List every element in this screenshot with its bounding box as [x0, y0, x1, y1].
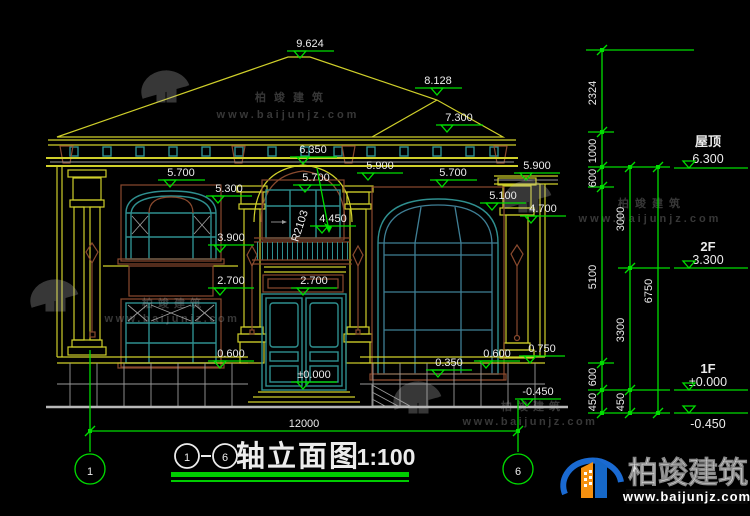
watermark-url: www.baijunjz.com — [216, 109, 360, 121]
floor-level-roof: 屋顶 6.300 — [674, 134, 748, 168]
svg-text:±0.000: ±0.000 — [689, 375, 727, 389]
watermark-brand: 柏竣建筑 — [618, 196, 686, 210]
balcony-railing — [252, 238, 352, 264]
overall-dim-text: 12000 — [289, 418, 320, 430]
swing-arrow — [282, 220, 287, 224]
svg-text:0.600: 0.600 — [483, 348, 511, 360]
watermark-bottom: 柏竣建筑 www.baijunjz.com — [396, 382, 598, 428]
drawing-title: 1 6 轴立面图 1:100 — [171, 439, 415, 482]
dim-a-1: 1000 — [587, 139, 599, 163]
axis-bubble-1: 1 — [75, 454, 105, 484]
brand-logo-name: 柏竣建筑 — [628, 456, 748, 490]
dimension-chains: 2324 1000 600 5100 600 450 3000 3300 450… — [586, 45, 694, 418]
level-marker-eave-right: 5.700 — [430, 167, 477, 187]
svg-text:5.700: 5.700 — [439, 167, 467, 179]
title-underline-thick — [171, 472, 409, 477]
brand-logo-url: www.baijunjz.com — [622, 489, 750, 504]
svg-text:8.128: 8.128 — [424, 75, 452, 87]
svg-text:2.700: 2.700 — [217, 275, 245, 287]
axis-bubble-6: 6 — [503, 454, 533, 484]
left-window-2f — [118, 185, 224, 264]
svg-text:-0.450: -0.450 — [690, 417, 725, 431]
dim-a-5: 450 — [587, 393, 599, 411]
svg-text:2.700: 2.700 — [300, 275, 328, 287]
level-marker-rail-top: 4.450 — [310, 213, 356, 233]
watermark-brand: 柏竣建筑 — [142, 296, 206, 310]
floor-level-1f: 1F ±0.000 — [674, 361, 748, 390]
wall-lamp — [511, 245, 523, 341]
title-underline-thin — [171, 480, 409, 482]
dim-c-0: 6750 — [643, 279, 655, 303]
level-marker-sill-2f-left: 3.900 — [208, 232, 254, 252]
level-marker-plinth-right: 0.750 — [519, 343, 565, 363]
floor-level-2f: 2F 3.300 — [674, 239, 748, 268]
svg-text:5.700: 5.700 — [302, 172, 330, 184]
level-marker-sill-1f-left: 0.600 — [208, 348, 254, 368]
svg-text:屋顶: 屋顶 — [695, 134, 721, 149]
level-marker-ridge2: 8.128 — [415, 75, 462, 95]
level-marker-cornice-center: 5.900 — [357, 160, 403, 180]
dim-b-1: 3300 — [615, 318, 627, 342]
title-axis-to: 6 — [222, 452, 228, 464]
spandrel-panel — [129, 266, 213, 296]
svg-text:-0.450: -0.450 — [522, 386, 553, 398]
dim-b-2: 450 — [615, 393, 627, 411]
floor-level-base: -0.450 — [674, 406, 748, 431]
svg-text:5.100: 5.100 — [489, 190, 517, 202]
svg-text:6: 6 — [515, 466, 521, 478]
dim-a-3: 5100 — [587, 265, 599, 289]
brand-logo-mark — [563, 458, 621, 498]
svg-text:5.700: 5.700 — [167, 167, 195, 179]
level-marker-cornice-right: 5.900 — [514, 160, 560, 180]
watermark-brand: 柏竣建筑 — [501, 399, 565, 413]
svg-text:3.300: 3.300 — [692, 253, 723, 267]
dentil-band — [70, 147, 498, 156]
svg-text:1F: 1F — [700, 361, 715, 376]
svg-text:5.900: 5.900 — [366, 160, 394, 172]
dim-a-2: 600 — [587, 169, 599, 187]
svg-text:7.300: 7.300 — [445, 112, 473, 124]
title-scale: 1:100 — [357, 444, 416, 470]
title-axis-from: 1 — [184, 452, 190, 464]
watermark-url: www.baijunjz.com — [578, 213, 722, 225]
svg-text:9.624: 9.624 — [296, 38, 324, 50]
svg-text:6.300: 6.300 — [692, 152, 723, 166]
dim-a-4: 600 — [587, 368, 599, 386]
svg-text:5.300: 5.300 — [215, 183, 243, 195]
svg-text:0.350: 0.350 — [435, 357, 463, 369]
left-column — [68, 170, 106, 355]
title-text: 轴立面图 — [236, 439, 360, 473]
corbel — [342, 146, 355, 163]
corbel — [494, 146, 507, 163]
svg-text:1: 1 — [87, 466, 93, 478]
watermark-brand: 柏竣建筑 — [255, 90, 331, 104]
svg-text:0.600: 0.600 — [217, 348, 245, 360]
svg-text:5.900: 5.900 — [523, 160, 551, 172]
brand-logo: 柏竣建筑 www.baijunjz.com — [563, 456, 750, 504]
svg-text:0.750: 0.750 — [528, 343, 556, 355]
svg-text:2F: 2F — [700, 239, 715, 254]
dim-b-0: 3000 — [615, 207, 627, 231]
svg-text:4.700: 4.700 — [529, 203, 557, 215]
entry-steps — [248, 392, 360, 402]
watermark-top: 柏竣建筑 www.baijunjz.com — [144, 71, 360, 121]
cad-elevation-drawing: 柏竣建筑 www.baijunjz.com 柏竣建筑 www.baijunjz.… — [0, 0, 750, 516]
wall-lamp — [353, 246, 363, 334]
level-marker-arch-top: 6.350 — [290, 144, 337, 164]
svg-text:3.900: 3.900 — [217, 232, 245, 244]
svg-text:4.450: 4.450 — [319, 213, 347, 225]
mid-right-pilaster — [343, 186, 373, 363]
svg-text:6.350: 6.350 — [299, 144, 327, 156]
corbel — [60, 146, 73, 163]
watermark-url: www.baijunjz.com — [462, 416, 598, 428]
wall-lamp — [247, 246, 257, 334]
level-marker-eave-left: 5.700 — [158, 167, 205, 187]
svg-text:±0.000: ±0.000 — [297, 369, 331, 381]
level-marker-eave-center: 5.700 — [293, 172, 340, 192]
watermark-url: www.baijunjz.com — [104, 313, 240, 325]
level-marker-head-1f-left: 2.700 — [208, 275, 254, 295]
wall-lamp — [86, 243, 98, 337]
level-marker-ridge: 9.624 — [287, 38, 334, 58]
drawing-canvas: 柏竣建筑 www.baijunjz.com 柏竣建筑 www.baijunjz.… — [0, 0, 750, 516]
dim-a-0: 2324 — [587, 81, 599, 105]
